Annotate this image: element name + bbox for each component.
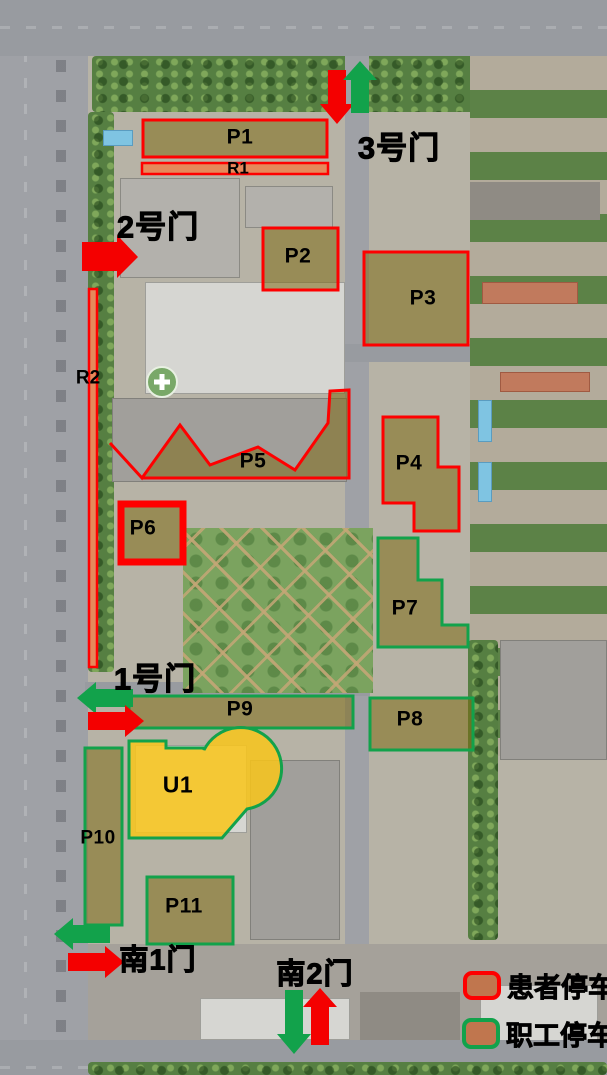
zone-label-p2: P2 — [285, 246, 312, 267]
zone-label-p5: P5 — [240, 451, 267, 472]
gate-3-label: 3号门 — [358, 133, 440, 164]
zone-label-p11: P11 — [165, 896, 203, 917]
south2-exit-arrow-icon — [277, 990, 311, 1054]
zone-label-r2: R2 — [76, 369, 100, 388]
zone-p5 — [110, 390, 349, 478]
zone-label-u1: U1 — [163, 774, 193, 797]
zone-label-p1: P1 — [227, 127, 254, 148]
zone-label-p10: P10 — [80, 829, 115, 848]
annotation-overlay — [0, 0, 607, 1075]
zone-u1 — [129, 728, 282, 838]
gate-1-label: 1号门 — [114, 664, 196, 695]
staff-parking-label: 职工停车 — [506, 1014, 607, 1053]
zone-label-p7: P7 — [392, 598, 419, 619]
patient-parking-label: 患者停车 — [507, 966, 607, 1005]
legend-row-staff: 职工停车 — [462, 1014, 607, 1053]
zone-label-p6: P6 — [130, 518, 157, 539]
zone-label-p9: P9 — [227, 699, 254, 720]
gate-south-2-label: 南2门 — [276, 961, 353, 990]
south1-entry-arrow-icon — [68, 946, 124, 978]
hospital-parking-map: P1 R1 P2 P3 R2 P5 P6 P4 P7 P8 P9 P10 P11… — [0, 0, 607, 1075]
zone-p7 — [378, 538, 468, 647]
zone-label-p4: P4 — [396, 453, 423, 474]
zone-label-p8: P8 — [397, 709, 424, 730]
gate-south-1-label: 南1门 — [119, 947, 196, 976]
staff-parking-swatch-icon — [462, 1018, 500, 1049]
legend-row-patient: 患者停车 — [463, 966, 607, 1005]
patient-parking-swatch-icon — [463, 971, 501, 1000]
zone-label-r1: R1 — [227, 160, 249, 177]
zone-r2 — [89, 289, 97, 667]
gate-2-label: 2号门 — [117, 212, 199, 243]
zone-label-p3: P3 — [410, 288, 437, 309]
